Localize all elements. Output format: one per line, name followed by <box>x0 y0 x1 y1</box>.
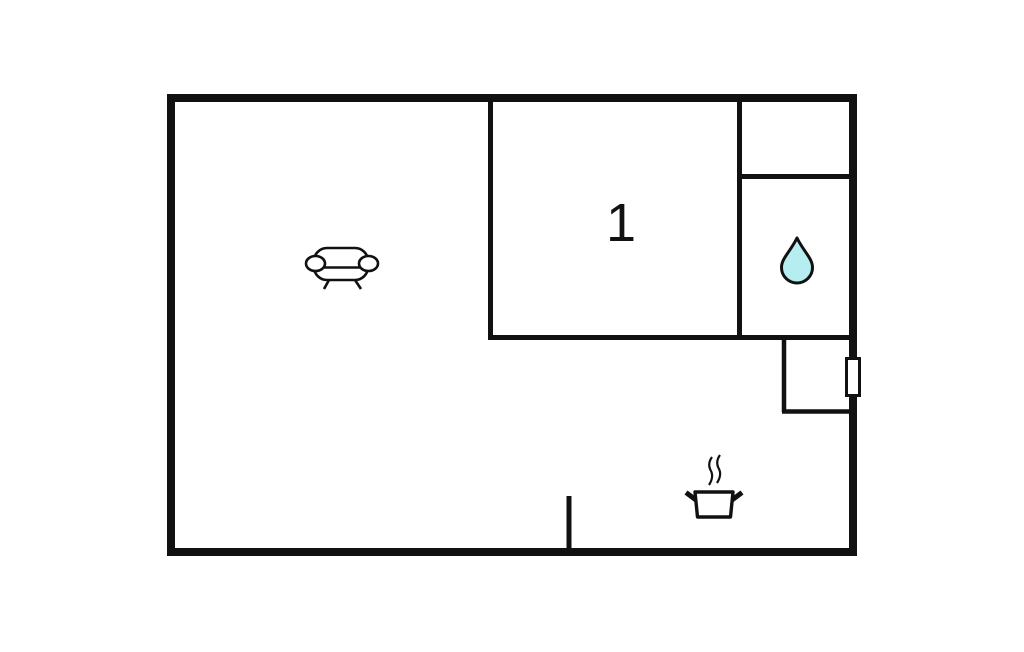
sofa-armrest-left <box>306 256 325 271</box>
window-marker <box>847 359 860 396</box>
steam-line-right <box>717 455 720 483</box>
steam-line-left <box>709 457 712 485</box>
sofa-leg-right <box>355 280 361 289</box>
plan-lines <box>171 98 860 552</box>
sofa-leg-left <box>324 280 329 289</box>
sofa-icon <box>306 248 378 289</box>
cooking-pot-icon <box>686 455 742 517</box>
water-drop-icon <box>782 238 813 283</box>
floorplan-svg: 1 <box>0 0 1024 652</box>
water-drop-shape <box>782 238 813 283</box>
outer-wall <box>171 98 853 552</box>
floorplan: 1 <box>0 0 1024 652</box>
room-label: 1 <box>606 193 636 253</box>
sofa-armrest-right <box>359 256 378 271</box>
pot-body <box>695 492 733 517</box>
